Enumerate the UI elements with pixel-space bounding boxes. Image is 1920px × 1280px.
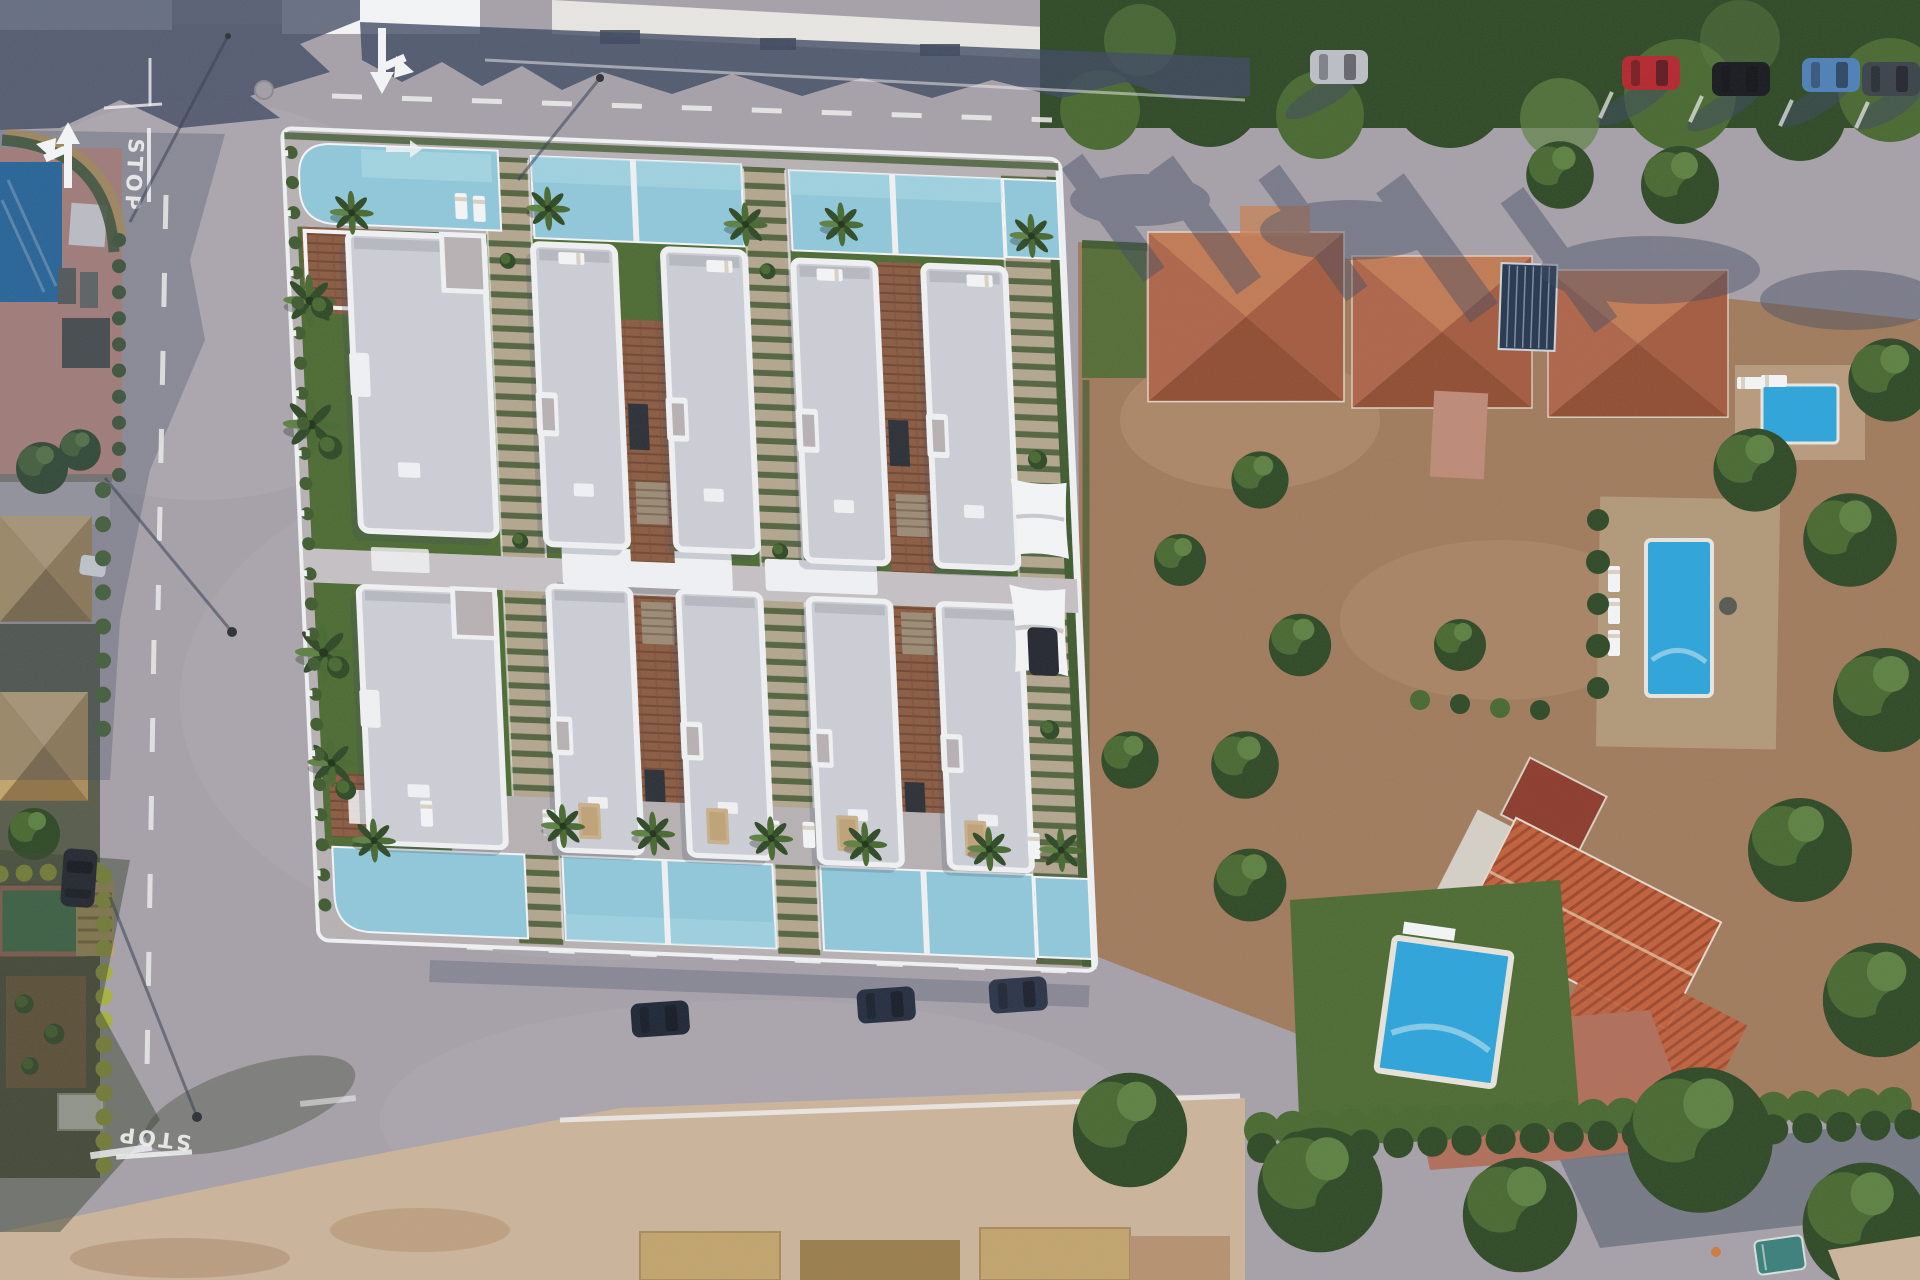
aerial-photo-canvas: STOP STOP: [0, 0, 1920, 1280]
photo-grain-overlay: [0, 0, 1920, 1280]
aerial-photo: STOP STOP: [0, 0, 1920, 1280]
